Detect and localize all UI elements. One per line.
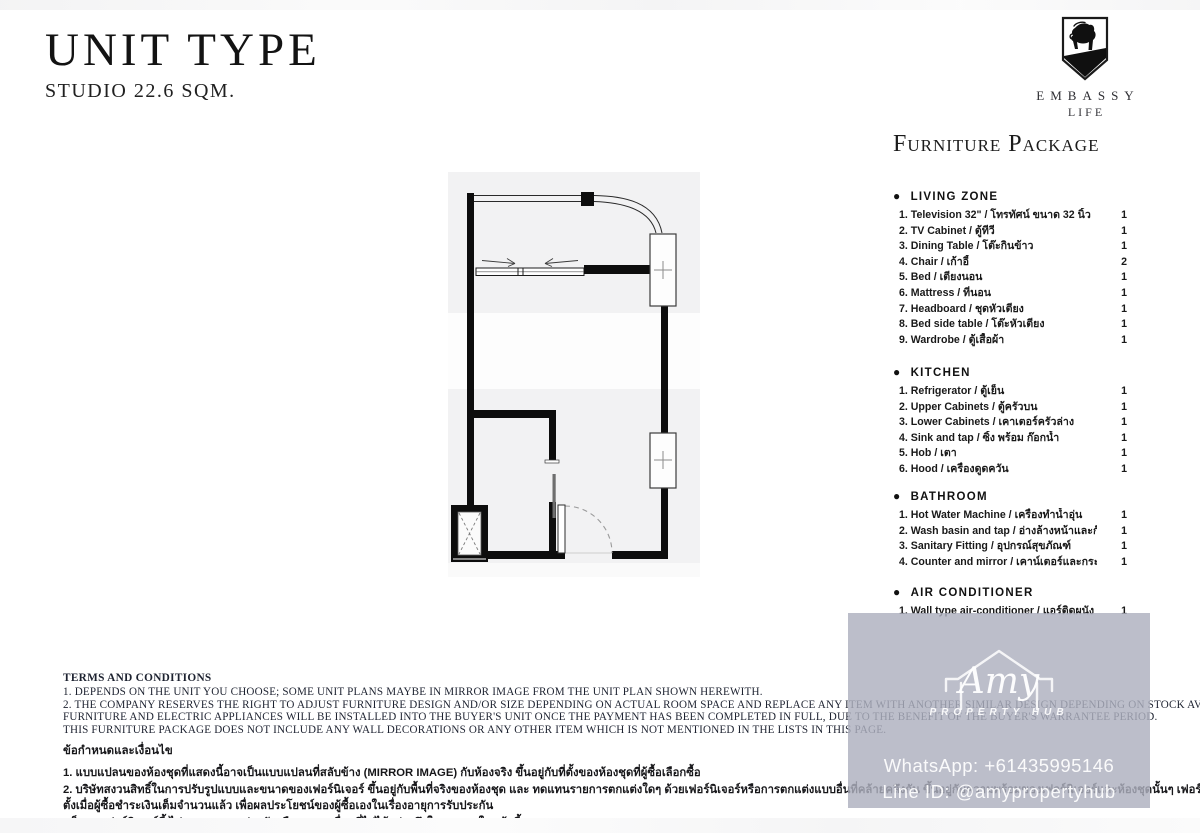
section-header: ● BATHROOM (893, 488, 1151, 505)
furniture-package-heading: Furniture Package (893, 131, 1151, 158)
section-header: ● LIVING ZONE (893, 188, 1151, 205)
furniture-item-row: 1. Television 32" / โทรทัศน์ ขนาด 32 นิ้… (893, 208, 1151, 224)
furniture-item-label: 4. Counter and mirror / เคาน์เตอร์และกระ… (899, 555, 1097, 571)
section-header: ● AIR CONDITIONER (893, 584, 1151, 601)
furniture-item-row: 4. Chair / เก้าอี้2 (893, 255, 1151, 271)
service-shaft (451, 505, 488, 562)
bullet-icon: ● (893, 188, 902, 205)
furniture-item-label: 2. TV Cabinet / ตู้ทีวี (899, 224, 1097, 240)
furniture-item-row: 4. Counter and mirror / เคาน์เตอร์และกระ… (893, 555, 1151, 571)
furniture-item-qty: 1 (1097, 446, 1151, 462)
structural-column (650, 433, 676, 488)
title-block: UNIT TYPE STUDIO 22.6 SQM. (45, 24, 321, 103)
furniture-section-living-zone: ● LIVING ZONE 1. Television 32" / โทรทัศ… (893, 188, 1151, 348)
furniture-item-qty: 1 (1097, 224, 1151, 240)
furniture-item-qty: 1 (1097, 302, 1151, 318)
furniture-item-label: 5. Hob / เตา (899, 446, 1097, 462)
page-subtitle: STUDIO 22.6 SQM. (45, 80, 321, 103)
unit-type-brochure-page: UNIT TYPE STUDIO 22.6 SQM. EMBASSY LIFE (0, 0, 1200, 833)
furniture-item-qty: 1 (1097, 508, 1151, 524)
furniture-item-qty: 1 (1097, 208, 1151, 224)
bottom-artifact-strip (0, 818, 1200, 833)
furniture-item-qty: 1 (1097, 539, 1151, 555)
furniture-item-qty: 2 (1097, 255, 1151, 271)
furniture-item-row: 1. Refrigerator / ตู้เย็น1 (893, 384, 1151, 400)
furniture-item-qty: 1 (1097, 384, 1151, 400)
bullet-icon: ● (893, 488, 902, 505)
section-header: ● KITCHEN (893, 364, 1151, 381)
furniture-item-row: 1. Hot Water Machine / เครื่องทำน้ำอุ่น1 (893, 508, 1151, 524)
furniture-item-qty: 1 (1097, 317, 1151, 333)
page-title: UNIT TYPE (45, 24, 321, 76)
furniture-item-row: 2. Wash basin and tap / อ่างล้างหน้าและก… (893, 524, 1151, 540)
furniture-item-qty: 1 (1097, 270, 1151, 286)
furniture-section-bathroom: ● BATHROOM 1. Hot Water Machine / เครื่อ… (893, 488, 1151, 570)
lion-shield-icon (1061, 16, 1109, 82)
floor-plan-drawing (448, 172, 700, 577)
furniture-item-row: 9. Wardrobe / ตู้เสื้อผ้า1 (893, 333, 1151, 349)
furniture-item-row: 2. TV Cabinet / ตู้ทีวี1 (893, 224, 1151, 240)
furniture-item-label: 3. Lower Cabinets / เคาเตอร์ครัวล่าง (899, 415, 1097, 431)
furniture-item-qty: 1 (1097, 415, 1151, 431)
furniture-section-kitchen: ● KITCHEN 1. Refrigerator / ตู้เย็น12. U… (893, 364, 1151, 478)
furniture-item-label: 4. Sink and tap / ซิ้ง พร้อม ก๊อกน้ำ (899, 431, 1097, 447)
furniture-item-qty: 1 (1097, 431, 1151, 447)
watermark-line-id: Line ID: @amypropertyhub (848, 781, 1150, 803)
structural-column (650, 234, 676, 306)
section-name: KITCHEN (911, 367, 971, 379)
furniture-item-label: 6. Hood / เครื่องดูดควัน (899, 462, 1097, 478)
furniture-item-qty: 1 (1097, 286, 1151, 302)
furniture-item-label: 9. Wardrobe / ตู้เสื้อผ้า (899, 333, 1097, 349)
furniture-item-row: 6. Mattress / ที่นอน1 (893, 286, 1151, 302)
logo-brand-sub-text: LIFE (1028, 105, 1145, 120)
top-artifact-strip (0, 0, 1200, 10)
watermark-whatsapp: WhatsApp: +61435995146 (848, 755, 1150, 777)
embassy-life-logo: EMBASSY LIFE (1025, 16, 1145, 120)
section-name: BATHROOM (911, 491, 988, 503)
furniture-item-label: 3. Dining Table / โต๊ะกินข้าว (899, 239, 1097, 255)
furniture-item-row: 2. Upper Cabinets / ตู้ครัวบน1 (893, 400, 1151, 416)
furniture-item-qty: 1 (1097, 462, 1151, 478)
bullet-icon: ● (893, 364, 902, 381)
furniture-item-label: 5. Bed / เตียงนอน (899, 270, 1097, 286)
furniture-item-label: 4. Chair / เก้าอี้ (899, 255, 1097, 271)
bullet-icon: ● (893, 584, 902, 601)
section-name: AIR CONDITIONER (911, 587, 1034, 599)
furniture-item-label: 1. Television 32" / โทรทัศน์ ขนาด 32 นิ้… (899, 208, 1097, 224)
furniture-item-row: 4. Sink and tap / ซิ้ง พร้อม ก๊อกน้ำ1 (893, 431, 1151, 447)
furniture-item-label: 2. Upper Cabinets / ตู้ครัวบน (899, 400, 1097, 416)
watermark-brand-script: Amy (848, 661, 1150, 702)
furniture-item-label: 2. Wash basin and tap / อ่างล้างหน้าและก… (899, 524, 1097, 540)
furniture-item-row: 3. Lower Cabinets / เคาเตอร์ครัวล่าง1 (893, 415, 1151, 431)
watermark-brand-tag: PROPERTY HUB (848, 707, 1150, 718)
furniture-item-qty: 1 (1097, 333, 1151, 349)
furniture-item-label: 6. Mattress / ที่นอน (899, 286, 1097, 302)
floor-plan (448, 172, 700, 577)
furniture-item-qty: 1 (1097, 400, 1151, 416)
furniture-item-row: 3. Sanitary Fitting / อุปกรณ์สุขภัณฑ์1 (893, 539, 1151, 555)
furniture-item-label: 1. Hot Water Machine / เครื่องทำน้ำอุ่น (899, 508, 1097, 524)
furniture-item-row: 3. Dining Table / โต๊ะกินข้าว1 (893, 239, 1151, 255)
furniture-item-qty: 1 (1097, 524, 1151, 540)
furniture-item-label: 3. Sanitary Fitting / อุปกรณ์สุขภัณฑ์ (899, 539, 1097, 555)
furniture-item-qty: 1 (1097, 239, 1151, 255)
logo-brand-text: EMBASSY (1031, 88, 1145, 104)
furniture-item-row: 5. Hob / เตา1 (893, 446, 1151, 462)
furniture-item-label: 1. Refrigerator / ตู้เย็น (899, 384, 1097, 400)
section-name: LIVING ZONE (911, 191, 999, 203)
furniture-item-qty: 1 (1097, 555, 1151, 571)
furniture-item-row: 6. Hood / เครื่องดูดควัน1 (893, 462, 1151, 478)
furniture-item-label: 8. Bed side table / โต๊ะหัวเตียง (899, 317, 1097, 333)
furniture-package-panel: Furniture Package ● LIVING ZONE 1. Telev… (893, 131, 1151, 158)
furniture-item-row: 7. Headboard / ชุดหัวเตียง1 (893, 302, 1151, 318)
agent-watermark: Amy PROPERTY HUB WhatsApp: +61435995146 … (848, 613, 1150, 808)
furniture-item-label: 7. Headboard / ชุดหัวเตียง (899, 302, 1097, 318)
furniture-item-row: 5. Bed / เตียงนอน1 (893, 270, 1151, 286)
furniture-item-row: 8. Bed side table / โต๊ะหัวเตียง1 (893, 317, 1151, 333)
